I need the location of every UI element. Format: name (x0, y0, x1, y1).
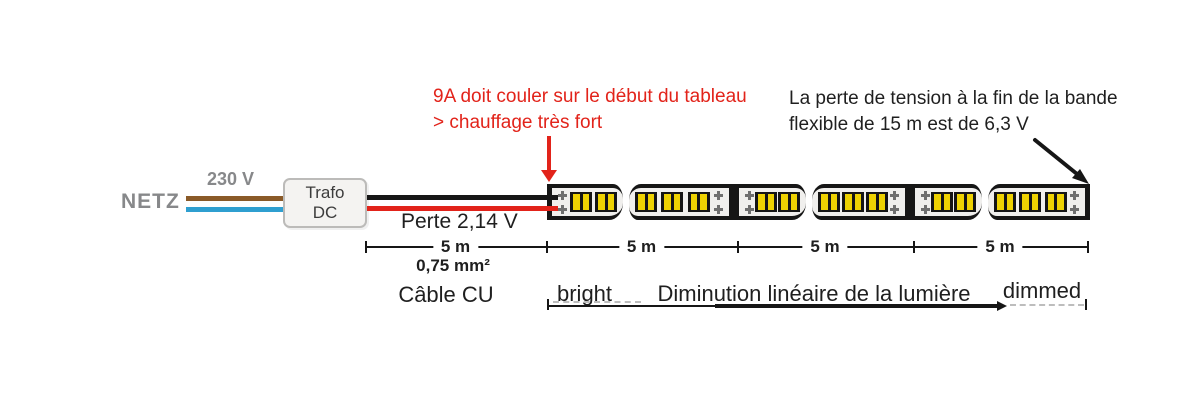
solder-pads (745, 191, 754, 214)
solder-pads (890, 191, 899, 214)
led-chip-icon (842, 192, 864, 212)
transformer-label-line2: DC (285, 203, 365, 223)
dimension-label: 5 m (433, 237, 478, 257)
dimmed-dashed-line (1010, 304, 1084, 306)
led-chip-icon (954, 192, 976, 212)
dimming-direction-arrow-icon (997, 301, 1007, 311)
strip-piece (988, 184, 1090, 220)
dimming-gradient-line (715, 304, 998, 308)
dimming-bracket-right-tick (1085, 299, 1087, 310)
mains-voltage-label: 230 V (207, 169, 254, 190)
led-chip-icon (570, 192, 592, 212)
mains-label: NETZ (121, 190, 180, 214)
overload-warning-line2: > chauffage très fort (433, 110, 747, 136)
cable-type-label: Câble CU (398, 282, 493, 308)
bright-dashed-line (553, 301, 641, 303)
led-chip-icon (1045, 192, 1067, 212)
solder-pad-icon (714, 191, 723, 200)
strip-piece (910, 184, 982, 220)
solder-pad-icon (714, 205, 723, 214)
transformer-label-line1: Trafo (285, 183, 365, 203)
cable-cross-section-label: 0,75 mm² (416, 256, 490, 276)
led-strip-wiring-diagram: 9A doit couler sur le début du tableau >… (0, 0, 1200, 404)
dimension-label: 5 m (619, 237, 664, 257)
live-wire-brown (186, 196, 285, 201)
solder-pads (558, 191, 567, 214)
solder-pads (921, 191, 930, 214)
led-chip-icon (635, 192, 657, 212)
solder-pad-icon (890, 205, 899, 214)
strip-piece (812, 184, 910, 220)
overload-warning-text: 9A doit couler sur le début du tableau >… (433, 84, 747, 136)
led-chip-icon (688, 192, 710, 212)
led-chip-icon (994, 192, 1016, 212)
dimension-tick (913, 241, 915, 253)
solder-pads (1070, 191, 1079, 214)
led-chip-icon (755, 192, 777, 212)
dimension-tick (365, 241, 367, 253)
solder-pad-icon (745, 191, 754, 200)
solder-pad-icon (558, 191, 567, 200)
strip-piece (734, 184, 806, 220)
led-chip-icon (1019, 192, 1041, 212)
led-chip-icon (931, 192, 953, 212)
solder-pad-icon (1070, 205, 1079, 214)
overload-arrow-icon (547, 136, 551, 171)
solder-pads (714, 191, 723, 214)
led-chip-icon (866, 192, 888, 212)
dimension-label: 5 m (802, 237, 847, 257)
led-chip-icon (818, 192, 840, 212)
cable-loss-label: Perte 2,14 V (401, 210, 518, 234)
voltage-drop-text: La perte de tension à la fin de la bande… (789, 86, 1118, 138)
voltage-drop-arrow-icon (1025, 132, 1097, 190)
led-chip-icon (778, 192, 800, 212)
dimension-tick (737, 241, 739, 253)
strip-piece (629, 184, 734, 220)
dimming-bracket-thin-line (548, 305, 718, 307)
dc-wire-red (367, 206, 558, 211)
overload-warning-line1: 9A doit couler sur le début du tableau (433, 84, 747, 110)
solder-pad-icon (921, 191, 930, 200)
voltage-drop-line1: La perte de tension à la fin de la bande (789, 86, 1118, 112)
dc-transformer-box: Trafo DC (283, 178, 367, 228)
dimension-tick (546, 241, 548, 253)
led-chip-icon (661, 192, 683, 212)
solder-pad-icon (745, 205, 754, 214)
overload-arrowhead-icon (541, 170, 557, 182)
dc-wire-black (367, 195, 558, 200)
neutral-wire-blue (186, 207, 285, 212)
dimension-tick (1087, 241, 1089, 253)
led-chip-icon (595, 192, 617, 212)
dimmed-label: dimmed (1003, 278, 1081, 304)
solder-pad-icon (921, 205, 930, 214)
solder-pad-icon (1070, 191, 1079, 200)
dimension-label: 5 m (977, 237, 1022, 257)
solder-pad-icon (890, 191, 899, 200)
solder-pad-icon (558, 205, 567, 214)
bright-label: bright (557, 281, 612, 307)
strip-piece (547, 184, 623, 220)
